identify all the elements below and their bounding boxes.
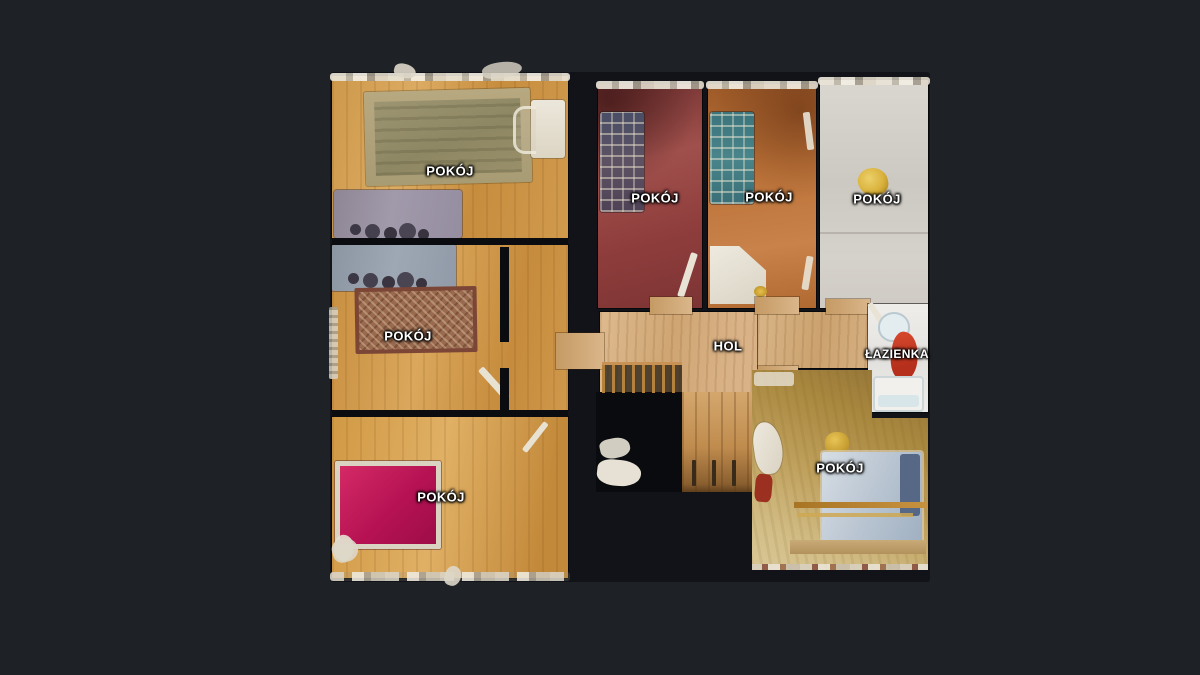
wall (332, 410, 568, 417)
doorway-threshold (650, 297, 692, 314)
red-cushion (754, 473, 773, 502)
room-label-pokoj-mid-left: POKÓJ (384, 329, 432, 344)
doorway-threshold (755, 297, 799, 314)
room-label-hol: HOL (714, 339, 743, 354)
floor-plan-viewer: POKÓJ POKÓJ POKÓJ POKÓJ POKÓJ POKÓJ HOL … (0, 0, 1200, 675)
staircase[interactable] (682, 392, 758, 492)
floor-plan: POKÓJ POKÓJ POKÓJ POKÓJ POKÓJ POKÓJ HOL … (0, 0, 1200, 675)
wall (500, 368, 509, 410)
headboard (790, 540, 926, 554)
chair (513, 106, 536, 154)
clothes-pile (348, 273, 359, 284)
room-label-pokoj-bottom-right: POKÓJ (816, 461, 864, 476)
hall-east-wing[interactable] (758, 312, 870, 368)
wardrobe (754, 372, 794, 386)
door-leaf (801, 256, 813, 291)
armchair (751, 420, 786, 475)
baluster (732, 460, 736, 486)
floor-seam (820, 232, 928, 234)
doorway-threshold (826, 299, 870, 314)
room-label-pokoj-orange: POKÓJ (745, 190, 793, 205)
door-leaf (677, 252, 698, 298)
bed (334, 190, 462, 238)
door-leaf (803, 112, 815, 151)
gold-cushion (825, 432, 849, 454)
bathtub (873, 376, 924, 412)
room-pokoj-mid-left[interactable] (332, 245, 568, 410)
room-label-pokoj-bottom-left: POKÓJ (417, 490, 465, 505)
gold-object (754, 286, 767, 297)
room-label-lazienka: ŁAZIENKA (865, 347, 929, 361)
curtain-rod (797, 513, 913, 517)
radiator (329, 307, 338, 379)
wall (500, 247, 509, 342)
clothes-pile (350, 224, 361, 235)
stair-landing-fragment (598, 435, 632, 461)
magenta-bed (335, 461, 441, 549)
room-label-pokoj-white: POKÓJ (853, 192, 901, 207)
baluster (712, 460, 716, 486)
room-pokoj-top-left[interactable] (332, 76, 568, 238)
room-label-pokoj-red: POKÓJ (631, 191, 679, 206)
stair-railing (602, 362, 682, 393)
doorway-threshold (556, 333, 604, 369)
baluster (692, 460, 696, 486)
room-label-pokoj-top-left: POKÓJ (426, 164, 474, 179)
curtain-rod (794, 502, 928, 508)
wall (332, 238, 568, 245)
ornate-rug (354, 286, 477, 354)
door-leaf (522, 421, 549, 453)
bed (332, 245, 456, 291)
stair-landing-fragment (596, 458, 642, 488)
stairwell-void (596, 392, 682, 492)
desk (531, 100, 565, 158)
